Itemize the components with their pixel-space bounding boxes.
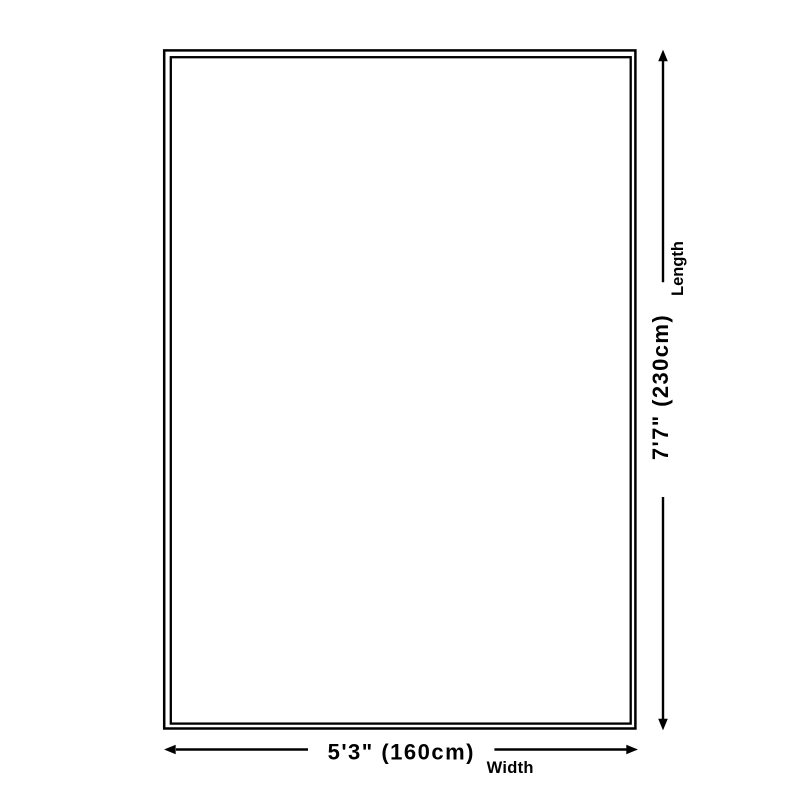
svg-text:Length: Length (669, 241, 687, 296)
svg-text:5'3" (160cm): 5'3" (160cm) (328, 739, 475, 764)
svg-text:Width: Width (487, 759, 534, 777)
svg-text:7'7" (230cm): 7'7" (230cm) (648, 314, 673, 460)
